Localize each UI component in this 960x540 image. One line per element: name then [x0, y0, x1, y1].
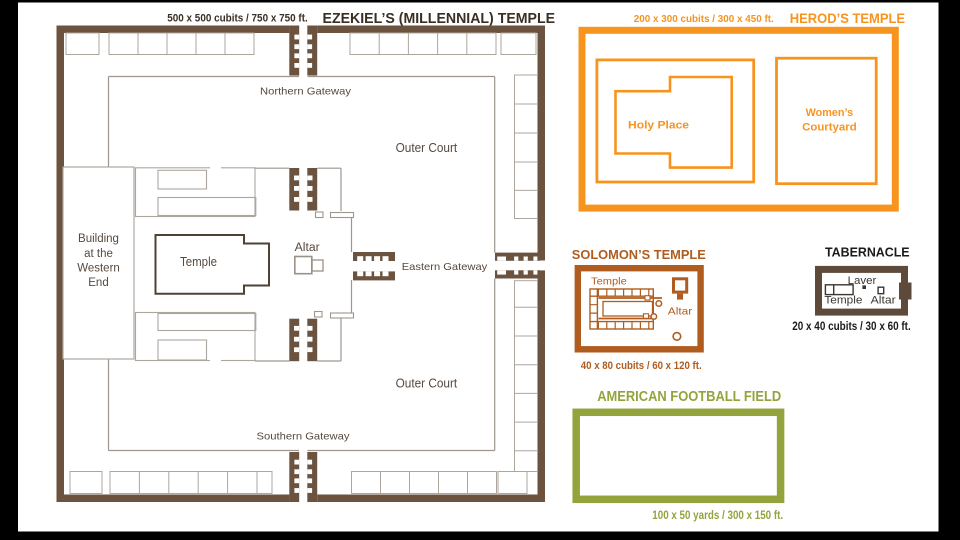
svg-text:HEROD’S TEMPLE: HEROD’S TEMPLE — [790, 11, 905, 26]
svg-text:Altar: Altar — [295, 242, 320, 254]
svg-text:End: End — [88, 277, 108, 289]
svg-text:Holy Place: Holy Place — [628, 120, 689, 132]
svg-text:at the: at the — [84, 248, 113, 260]
svg-text:SOLOMON’S TEMPLE: SOLOMON’S TEMPLE — [572, 247, 706, 262]
svg-text:500 x 500 cubits / 750 x 750 f: 500 x 500 cubits / 750 x 750 ft. — [167, 13, 308, 25]
svg-text:Eastern Gateway: Eastern Gateway — [402, 261, 488, 273]
svg-text:Southern Gateway: Southern Gateway — [257, 431, 351, 443]
svg-text:Temple: Temple — [591, 277, 627, 288]
svg-text:Altar: Altar — [668, 306, 693, 318]
svg-text:Temple: Temple — [824, 295, 862, 307]
svg-text:20 x 40 cubits / 30 x 60 ft.: 20 x 40 cubits / 30 x 60 ft. — [792, 319, 911, 333]
svg-text:Courtyard: Courtyard — [802, 122, 857, 134]
svg-text:Altar: Altar — [871, 295, 896, 307]
svg-text:100 x 50 yards / 300 x 150 ft.: 100 x 50 yards / 300 x 150 ft. — [652, 510, 783, 522]
svg-text:AMERICAN FOOTBALL FIELD: AMERICAN FOOTBALL FIELD — [597, 389, 781, 405]
svg-text:Outer Court: Outer Court — [396, 377, 458, 391]
svg-text:200 x 300 cubits / 300 x 450 f: 200 x 300 cubits / 300 x 450 ft. — [634, 13, 774, 25]
svg-text:Outer Court: Outer Court — [396, 141, 458, 155]
svg-text:Northern Gateway: Northern Gateway — [260, 85, 352, 97]
svg-text:Women’s: Women’s — [806, 107, 854, 119]
svg-text:40 x 80 cubits / 60 x 120 ft.: 40 x 80 cubits / 60 x 120 ft. — [581, 360, 702, 372]
svg-text:TABERNACLE: TABERNACLE — [825, 245, 910, 260]
svg-text:EZEKIEL’S (MILLENNIAL) TEMPLE: EZEKIEL’S (MILLENNIAL) TEMPLE — [323, 11, 556, 27]
svg-text:Temple: Temple — [180, 255, 217, 269]
svg-text:Western: Western — [77, 263, 120, 275]
svg-text:Building: Building — [78, 233, 119, 245]
